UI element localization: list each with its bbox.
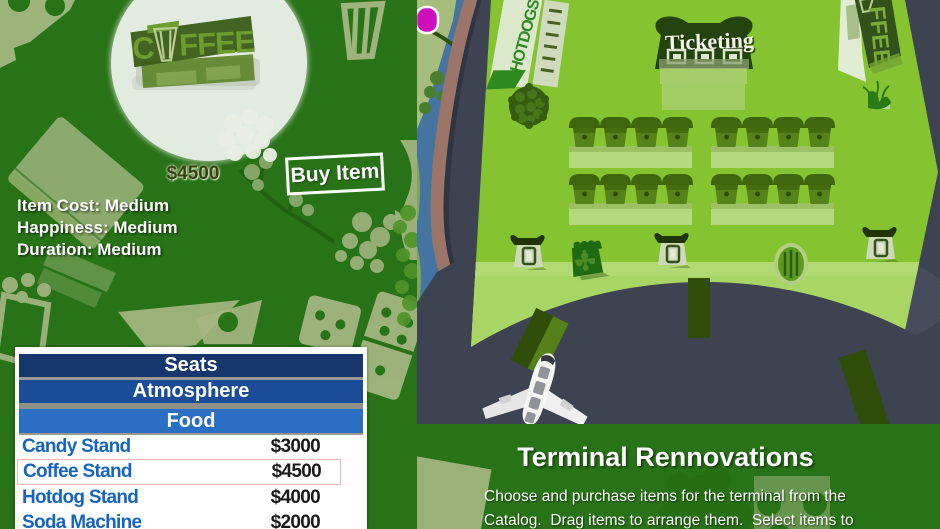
svg-text:FFEE: FFEE [178, 24, 255, 63]
svg-text:C: C [131, 30, 155, 66]
